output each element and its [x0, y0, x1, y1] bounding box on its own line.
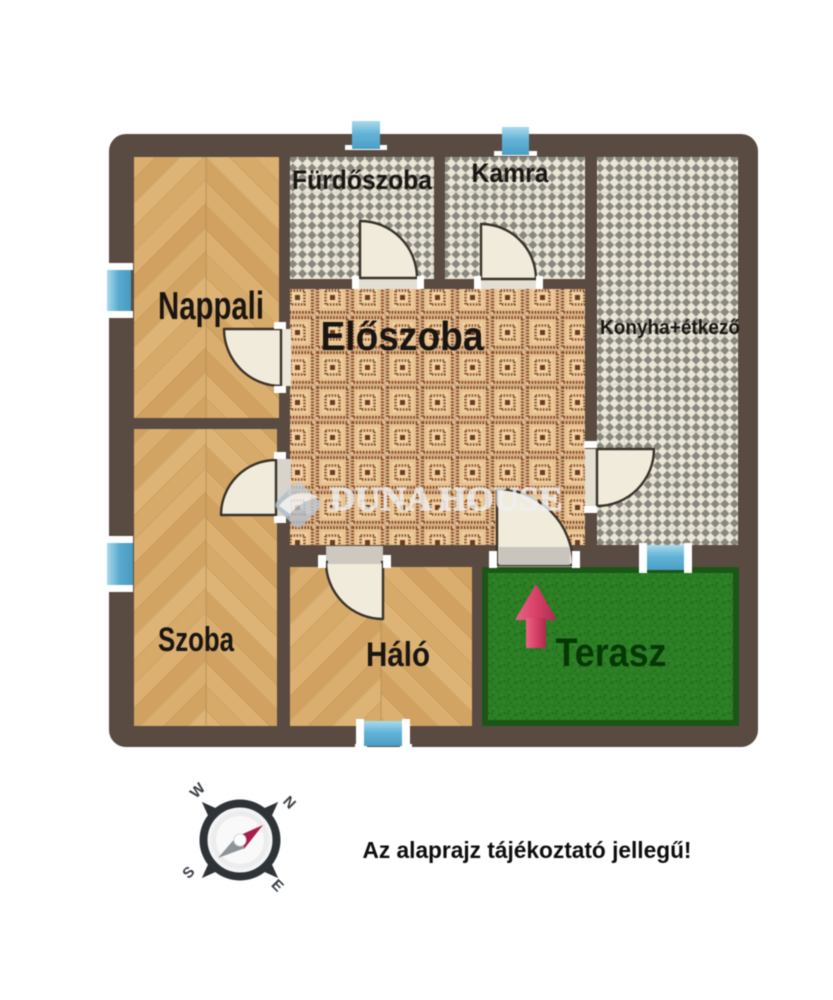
- svg-text:DUNA HOUSE: DUNA HOUSE: [330, 481, 563, 518]
- svg-text:Az alaprajz tájékoztató jelleg: Az alaprajz tájékoztató jellegű!: [363, 837, 692, 863]
- svg-text:Előszoba: Előszoba: [321, 313, 485, 359]
- svg-text:Fürdőszoba: Fürdőszoba: [292, 165, 433, 195]
- svg-text:Nappali: Nappali: [158, 285, 264, 328]
- svg-text:Háló: Háló: [366, 636, 430, 674]
- svg-text:Kamra: Kamra: [472, 158, 550, 188]
- svg-text:Terasz: Terasz: [556, 631, 667, 675]
- svg-text:Konyha+étkező: Konyha+étkező: [600, 317, 740, 339]
- svg-text:Szoba: Szoba: [158, 621, 235, 659]
